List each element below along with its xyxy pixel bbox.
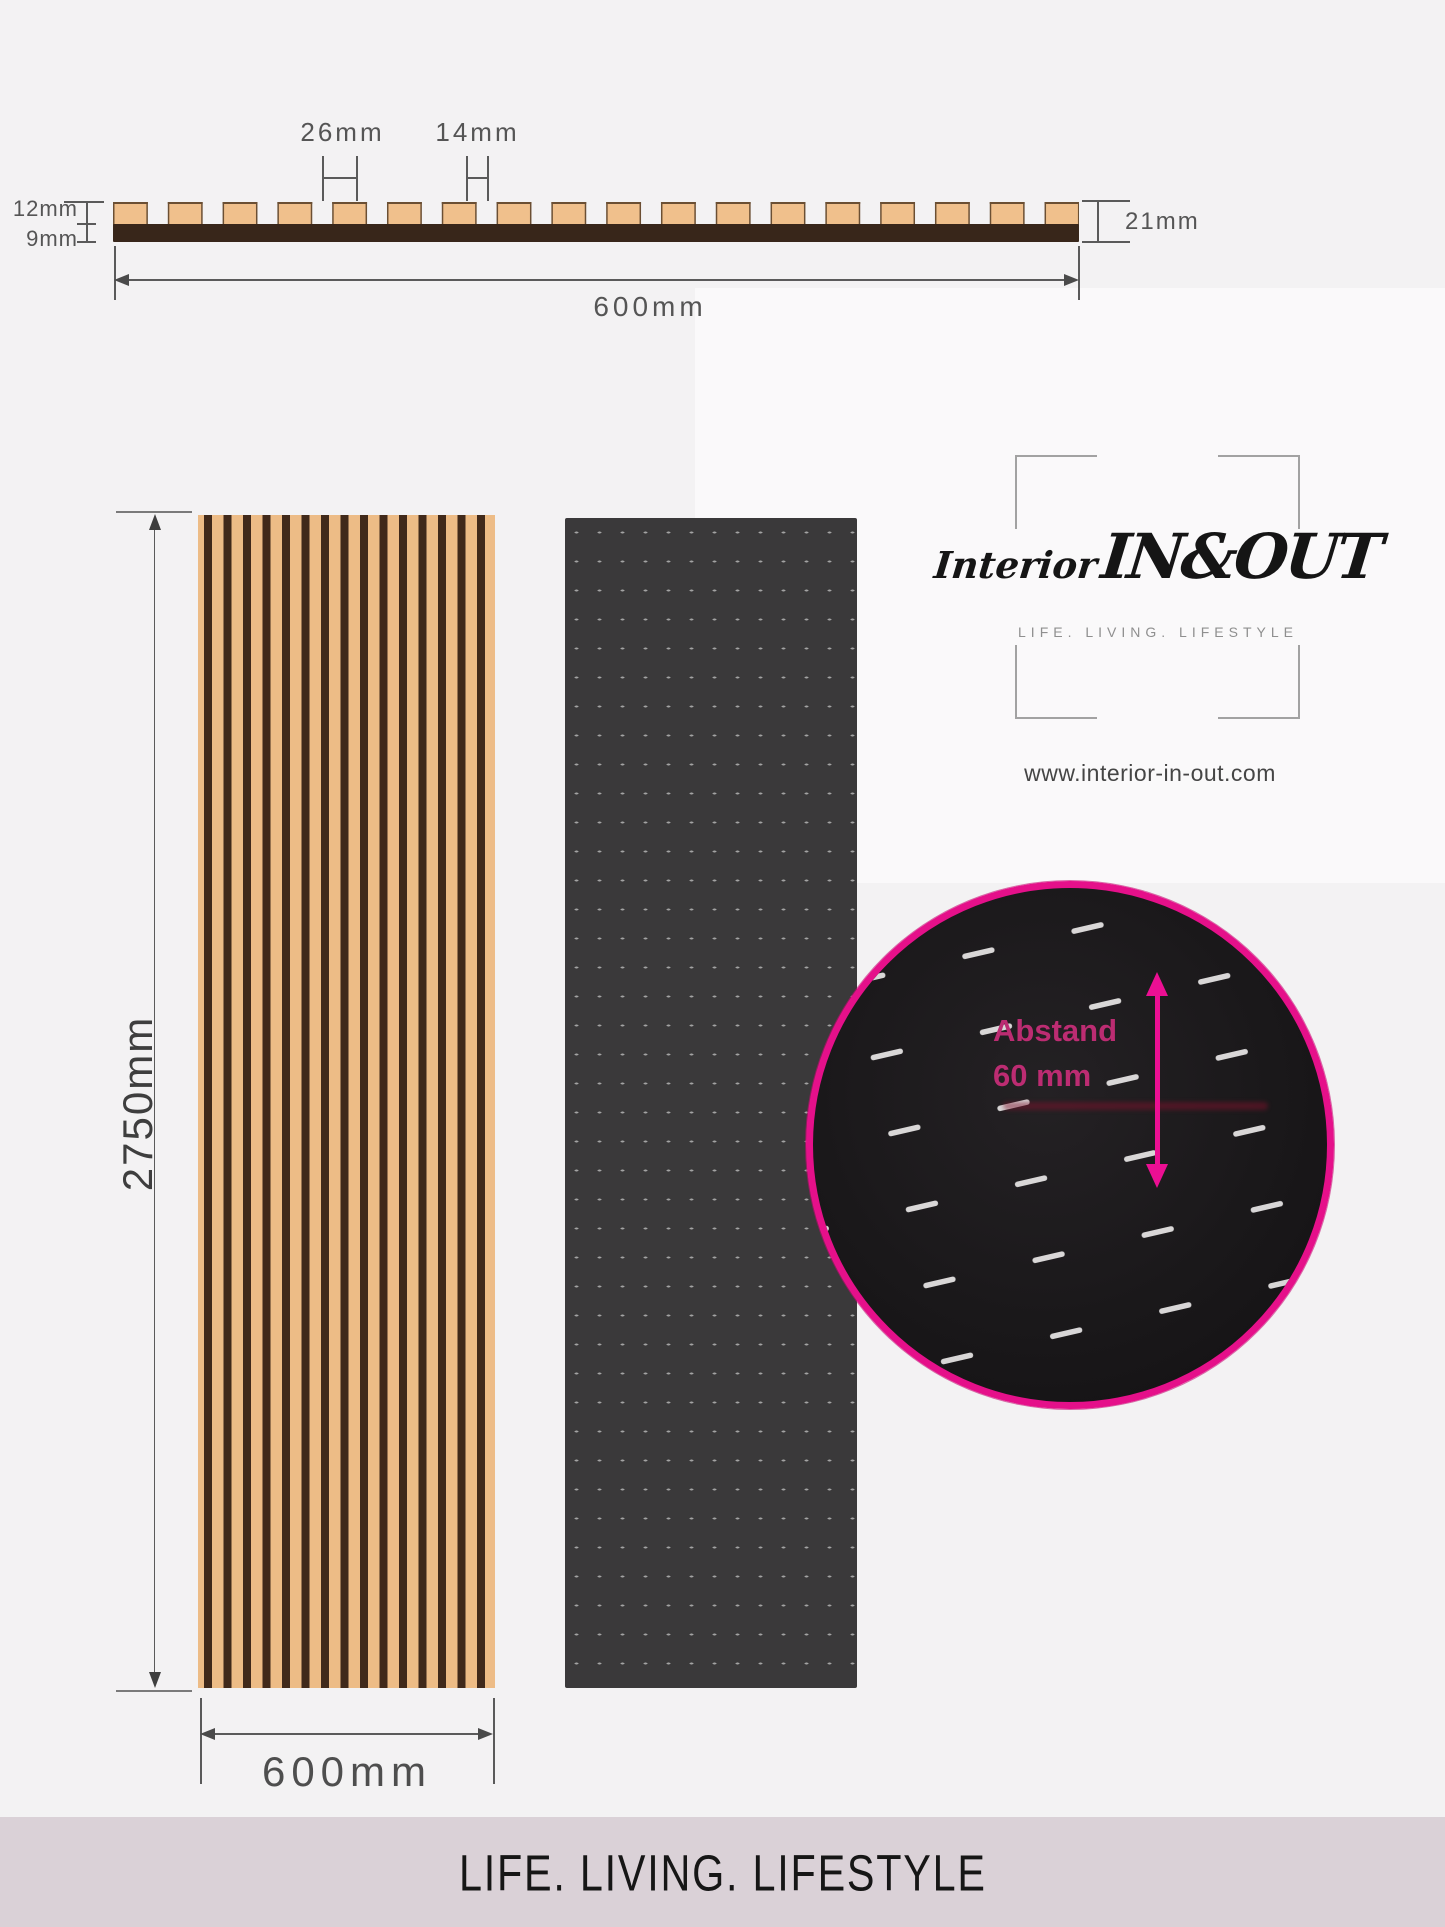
dim-2750-bottom-tick xyxy=(116,1690,192,1692)
spacing-arrow-head-up xyxy=(1146,972,1168,996)
logo-tagline: LIFE. LIVING. LIFESTYLE xyxy=(1008,624,1308,640)
spacing-annotation-word: Abstand xyxy=(993,1008,1117,1053)
felt-detail-magnifier-circle: Abstand 60 mm xyxy=(806,881,1334,1409)
dim-label-base-height: 9mm xyxy=(8,226,78,252)
dim-2750-label-wrap: 2750mm xyxy=(40,1006,235,1201)
spacing-arrow-shaft xyxy=(1155,990,1160,1170)
wood-slat-grooves xyxy=(204,515,490,1688)
logo-wordmark: Interior IN&OUT xyxy=(966,520,1349,593)
magnified-felt-texture xyxy=(813,888,1327,1402)
dim-600b-arrowhead-left xyxy=(200,1728,215,1740)
cross-section-base-strip xyxy=(113,224,1079,242)
cross-section-slats xyxy=(113,202,1079,225)
logo-frame-corner-top-right xyxy=(1218,455,1300,529)
dim-2750-top-tick xyxy=(116,511,192,513)
spacing-annotation: Abstand 60 mm xyxy=(993,1008,1117,1098)
dim-label-total-width: 600mm xyxy=(520,291,780,323)
dim-2750-arrowhead-top xyxy=(149,514,161,530)
product-spec-sheet: { "cross_section": { "labels": { "slat_w… xyxy=(0,0,1445,1927)
dim-600-arrowhead-left xyxy=(114,274,129,286)
dim-label-slat-height: 12mm xyxy=(8,196,78,222)
footer-slogan: LIFE. LIVING. LIFESTYLE xyxy=(459,1842,987,1901)
spacing-arrow-head-down xyxy=(1146,1164,1168,1188)
dim-label-panel-height: 2750mm xyxy=(114,1016,162,1191)
dim-label-panel-width: 600mm xyxy=(197,1748,497,1796)
logo-wordmark-interior: Interior xyxy=(932,543,1099,587)
dim-600-left-ext xyxy=(114,246,116,300)
wood-slat-panel-front-view xyxy=(198,515,495,1688)
dim-14mm-connector xyxy=(466,177,488,179)
dim-21mm-top-tick xyxy=(1082,200,1130,202)
dim-21mm-bottom-tick xyxy=(1082,241,1130,243)
dim-600-arrowhead-right xyxy=(1064,274,1079,286)
website-url: www.interior-in-out.com xyxy=(995,760,1305,787)
logo-frame-corner-bottom-left xyxy=(1015,645,1097,719)
dim-label-slat-width: 26mm xyxy=(295,117,390,148)
felt-red-fiber xyxy=(1003,1102,1268,1110)
dim-600b-arrowhead-right xyxy=(478,1728,493,1740)
spacing-annotation-value: 60 mm xyxy=(993,1053,1117,1098)
dim-label-gap-width: 14mm xyxy=(430,117,525,148)
logo-frame-corner-top-left xyxy=(1015,455,1097,529)
dim-2750-arrowhead-bottom xyxy=(149,1672,161,1688)
dim-26mm-connector xyxy=(322,177,358,179)
dim-600b-arrow-line xyxy=(208,1733,488,1735)
dim-21mm-line xyxy=(1097,200,1099,243)
dim-left-line xyxy=(86,201,88,242)
logo-frame-corner-bottom-right xyxy=(1218,645,1300,719)
dim-600-right-ext xyxy=(1078,246,1080,300)
footer-band: LIFE. LIVING. LIFESTYLE xyxy=(0,1817,1445,1927)
dim-label-total-height: 21mm xyxy=(1125,208,1225,236)
logo-wordmark-in-and-out: IN&OUT xyxy=(1098,520,1384,593)
dim-600-arrow-line xyxy=(122,279,1074,281)
